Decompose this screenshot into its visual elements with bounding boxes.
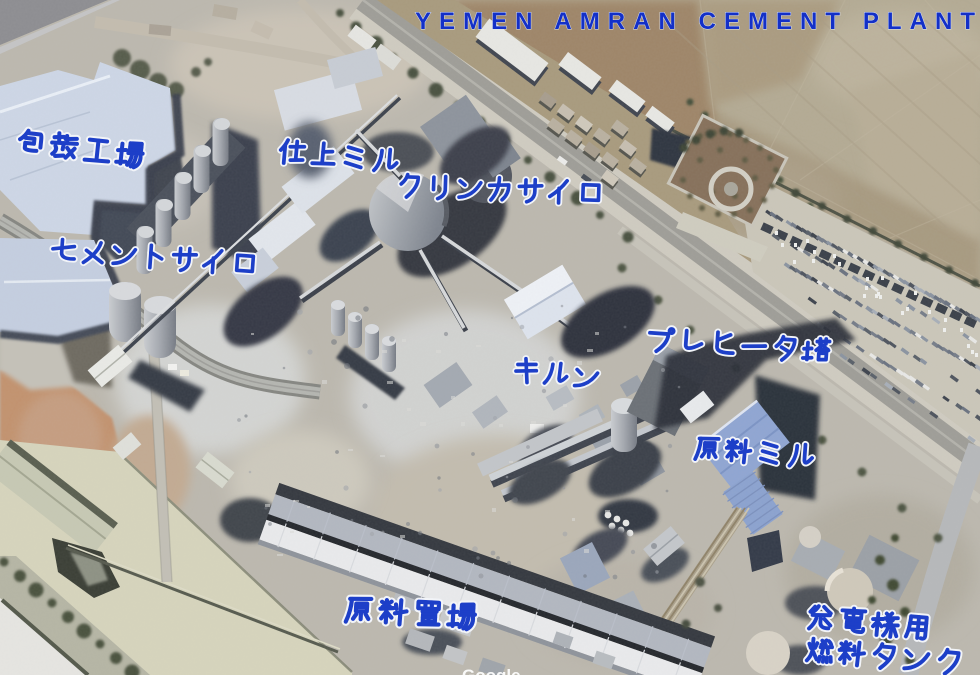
- svg-text:Google: Google: [462, 666, 521, 675]
